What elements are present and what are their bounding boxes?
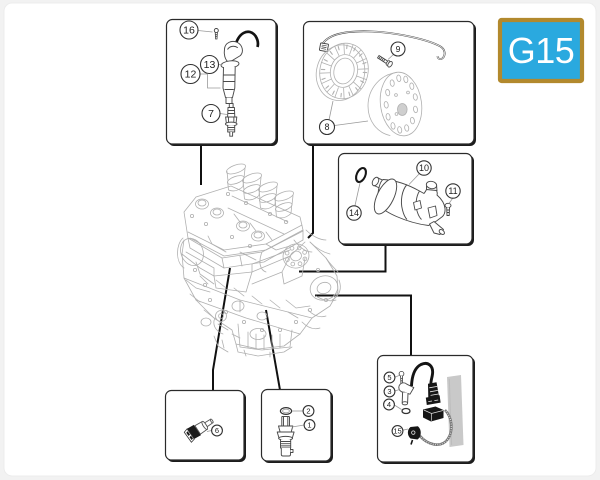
svg-text:5: 5 (387, 373, 391, 382)
svg-text:8: 8 (324, 122, 329, 132)
svg-text:6: 6 (215, 426, 219, 435)
svg-text:G15: G15 (508, 30, 575, 71)
svg-text:3: 3 (387, 387, 391, 396)
svg-text:7: 7 (208, 108, 214, 120)
svg-text:4: 4 (387, 400, 391, 409)
svg-text:14: 14 (349, 208, 359, 218)
svg-text:2: 2 (306, 407, 310, 416)
svg-text:1: 1 (307, 421, 311, 430)
svg-text:10: 10 (419, 163, 429, 173)
svg-text:11: 11 (448, 186, 457, 196)
svg-text:13: 13 (204, 59, 216, 71)
svg-text:12: 12 (185, 69, 197, 81)
svg-text:9: 9 (396, 44, 401, 54)
svg-text:16: 16 (183, 25, 195, 37)
svg-text:15: 15 (393, 427, 401, 436)
